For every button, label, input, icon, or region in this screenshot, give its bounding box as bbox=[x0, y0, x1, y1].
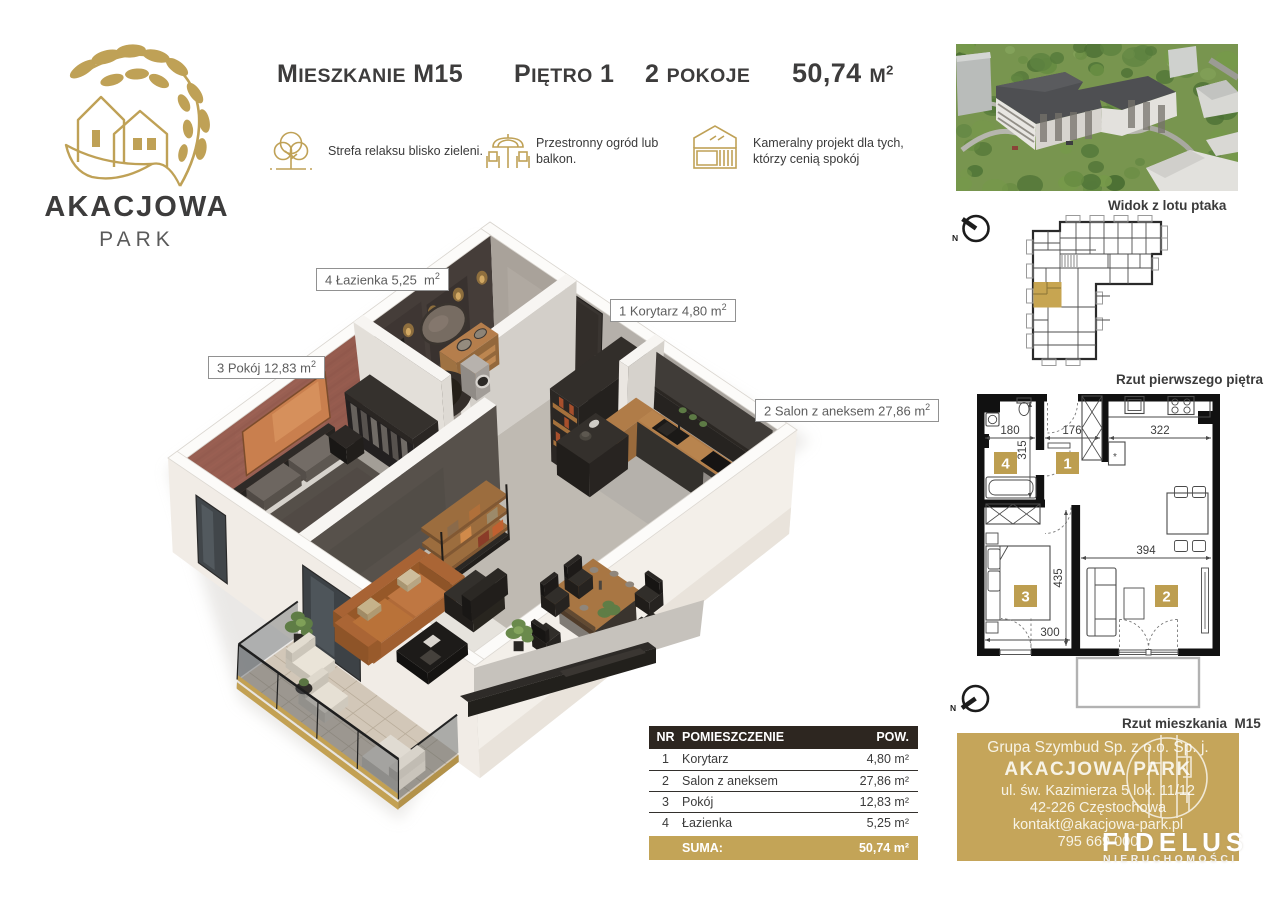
svg-text:300: 300 bbox=[1040, 627, 1059, 639]
svg-text:322: 322 bbox=[1150, 425, 1169, 437]
svg-text:3: 3 bbox=[1021, 589, 1029, 606]
svg-text:N: N bbox=[952, 233, 958, 243]
svg-text:315: 315 bbox=[1017, 440, 1029, 459]
svg-text:*: * bbox=[1113, 452, 1117, 463]
svg-text:2: 2 bbox=[1162, 589, 1170, 606]
svg-text:180: 180 bbox=[1000, 425, 1019, 437]
svg-text:394: 394 bbox=[1136, 545, 1156, 557]
svg-text:435: 435 bbox=[1053, 568, 1065, 587]
svg-text:N: N bbox=[950, 703, 956, 713]
svg-text:4: 4 bbox=[1001, 456, 1010, 473]
svg-text:176: 176 bbox=[1062, 425, 1081, 437]
svg-text:1: 1 bbox=[1063, 456, 1071, 473]
